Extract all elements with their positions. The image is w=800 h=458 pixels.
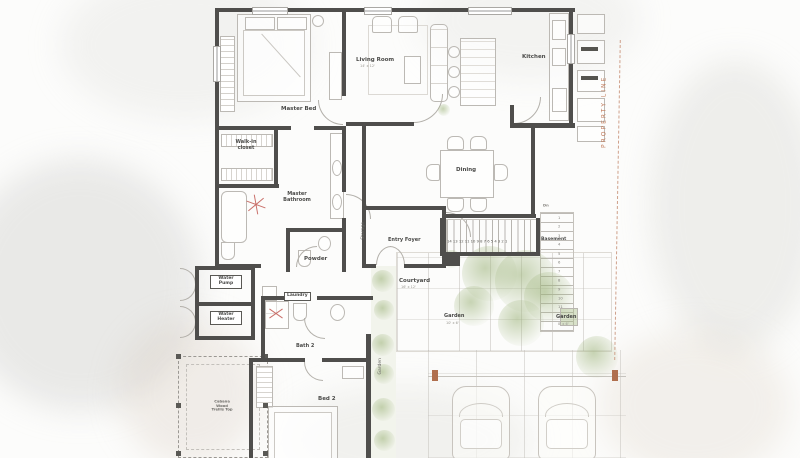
- dining-chair: [494, 164, 508, 181]
- canopy-label-line3: Trellis Top: [211, 408, 232, 412]
- watercolor-wash: [650, 60, 800, 350]
- door-arc: [304, 318, 325, 339]
- wall: [286, 228, 290, 272]
- dining-chair: [470, 136, 487, 150]
- mattress: [274, 412, 332, 458]
- tree-icon: [454, 286, 494, 326]
- dining-table: [440, 150, 494, 198]
- room-label-dining: Dining: [456, 167, 476, 173]
- pillow: [277, 17, 307, 30]
- desk-icon: [342, 366, 364, 379]
- fridge-icon: [552, 88, 567, 112]
- door-arc: [514, 97, 541, 124]
- wall: [322, 358, 371, 362]
- canopy-post: [176, 403, 181, 408]
- canopy-post: [263, 451, 268, 456]
- shrub-icon: [372, 270, 394, 292]
- wall: [251, 266, 255, 340]
- wall: [317, 296, 373, 300]
- room-label-laundry: Laundry: [284, 292, 311, 301]
- wall: [536, 218, 540, 256]
- pillow: [245, 17, 275, 30]
- wall: [215, 130, 219, 188]
- area-dim-courtyard: 16' x 12': [401, 285, 416, 289]
- property-line-label: PROPERTY LINE: [601, 76, 608, 148]
- room-label-living-room: Living Room: [356, 57, 394, 63]
- wall: [346, 122, 414, 126]
- sofa-icon: [430, 24, 448, 102]
- bar-stool: [448, 46, 460, 58]
- sink-icon: [332, 160, 342, 176]
- area-label-garden-left: Garden: [444, 314, 464, 320]
- shrub-icon: [374, 300, 394, 320]
- room-label-bed-2: Bed 2: [318, 396, 336, 402]
- area-label-courtyard: Courtyard: [399, 278, 430, 284]
- nightstand: [312, 15, 324, 27]
- outdoor-counter: [577, 40, 605, 64]
- grill-icon: [581, 47, 598, 51]
- window: [213, 46, 221, 82]
- room-label-walk-in-closet: Walk-in closet: [228, 140, 264, 151]
- sink-icon: [552, 20, 566, 40]
- window: [364, 7, 392, 15]
- mattress: [243, 30, 305, 96]
- bathtub-icon: [221, 191, 247, 243]
- stair-down-label: Dn: [543, 204, 549, 208]
- room-label-water-pump: Water Pump: [210, 275, 242, 289]
- armchair-icon: [372, 16, 392, 33]
- room-label-master-bathroom: Master Bathroom: [280, 192, 314, 203]
- gate-post: [432, 370, 438, 381]
- wall: [215, 126, 291, 130]
- sink-icon: [318, 236, 331, 251]
- wall: [249, 358, 253, 458]
- room-dim-living-room: 14' x 12': [360, 64, 375, 68]
- window: [567, 34, 575, 64]
- wall: [510, 123, 575, 128]
- room-label-powder: Powder: [304, 256, 327, 262]
- wall: [342, 8, 346, 96]
- room-label-entry-foyer: Entry Foyer: [388, 238, 421, 244]
- shrub-icon: [372, 334, 394, 356]
- car-roof: [546, 419, 588, 449]
- wardrobe-icon: [256, 366, 273, 408]
- basement-stair-numbers: 14 13 12 11 10 9 8 7 6 5 4 3 2 1: [447, 240, 507, 244]
- wall: [531, 126, 535, 218]
- area-dim-garden-left: 10' x 6': [446, 321, 459, 325]
- wall: [342, 126, 346, 192]
- room-label-master-bed: Master Bed: [281, 106, 316, 112]
- wall: [215, 184, 279, 188]
- wall: [261, 296, 265, 362]
- bar-stool: [448, 86, 460, 98]
- wall: [362, 264, 376, 268]
- outdoor-counter: [577, 14, 605, 34]
- door-arc: [304, 362, 323, 381]
- room-label-bath-2: Bath 2: [296, 344, 314, 350]
- car-windshield: [459, 403, 503, 417]
- stove-icon: [552, 48, 566, 66]
- dining-chair: [426, 164, 440, 181]
- room-label-kitchen: Kitchen: [522, 54, 546, 60]
- door-arc: [376, 246, 391, 265]
- wall: [362, 206, 446, 210]
- tv-console: [329, 52, 342, 100]
- wall: [442, 214, 536, 218]
- kitchen-island: [460, 38, 496, 106]
- tree-icon: [498, 300, 544, 346]
- gate-post: [612, 370, 618, 381]
- exterior-stair-numbers: 1 2 3 4 5 6 7 8 9 10 11 12: [558, 214, 563, 321]
- car-roof: [460, 419, 502, 449]
- area-label-garden-right: Garden: [556, 315, 576, 321]
- area-dim-garden-right: 8' x 6': [558, 322, 569, 326]
- coffee-table: [404, 56, 421, 84]
- wall: [510, 105, 514, 127]
- wardrobe-icon: [220, 36, 235, 112]
- wall: [442, 254, 460, 266]
- label-basement: Basement: [541, 238, 566, 243]
- wall: [195, 302, 255, 306]
- wall: [195, 266, 255, 270]
- dining-chair: [447, 136, 464, 150]
- property-line: [614, 40, 622, 360]
- wall: [195, 336, 255, 340]
- canopy-post: [176, 451, 181, 456]
- wall: [569, 8, 573, 123]
- canopy-post: [263, 403, 268, 408]
- wall: [404, 264, 446, 268]
- wall: [249, 358, 305, 362]
- area-label-garden-strip: Garden: [379, 358, 384, 375]
- bar-stool: [448, 66, 460, 78]
- closet-rod: [221, 168, 273, 181]
- dining-chair: [470, 198, 487, 212]
- wall: [215, 188, 219, 268]
- window: [468, 7, 512, 15]
- toilet-icon: [221, 242, 235, 260]
- door-arc: [390, 246, 405, 265]
- door-arc: [318, 100, 343, 125]
- floor-plan-canvas: 14 13 12 11 10 9 8 7 6 5 4 3 2 1 1 2 3 4…: [0, 0, 800, 458]
- armchair-icon: [398, 16, 418, 33]
- watercolor-wash: [600, 330, 790, 458]
- car-windshield: [545, 403, 589, 417]
- car-icon: [452, 386, 510, 458]
- wall: [286, 228, 346, 232]
- room-label-storage: Storage: [362, 222, 367, 240]
- canopy-label: Cabana Wood Trellis Top: [196, 400, 248, 412]
- room-label-water-heater: Water Heater: [210, 311, 242, 325]
- car-icon: [538, 386, 596, 458]
- canopy-post: [176, 354, 181, 359]
- shrub-icon: [372, 398, 395, 421]
- dining-chair: [447, 198, 464, 212]
- wall: [342, 218, 346, 272]
- wall: [366, 334, 371, 458]
- sink-icon: [330, 304, 345, 321]
- wall: [440, 218, 446, 252]
- wall: [362, 126, 366, 206]
- wall: [274, 130, 278, 188]
- wall: [442, 206, 446, 214]
- window: [252, 7, 288, 15]
- grill-icon: [581, 76, 598, 80]
- sink-icon: [332, 194, 342, 210]
- shrub-icon: [374, 430, 395, 451]
- plant-icon: [438, 104, 450, 116]
